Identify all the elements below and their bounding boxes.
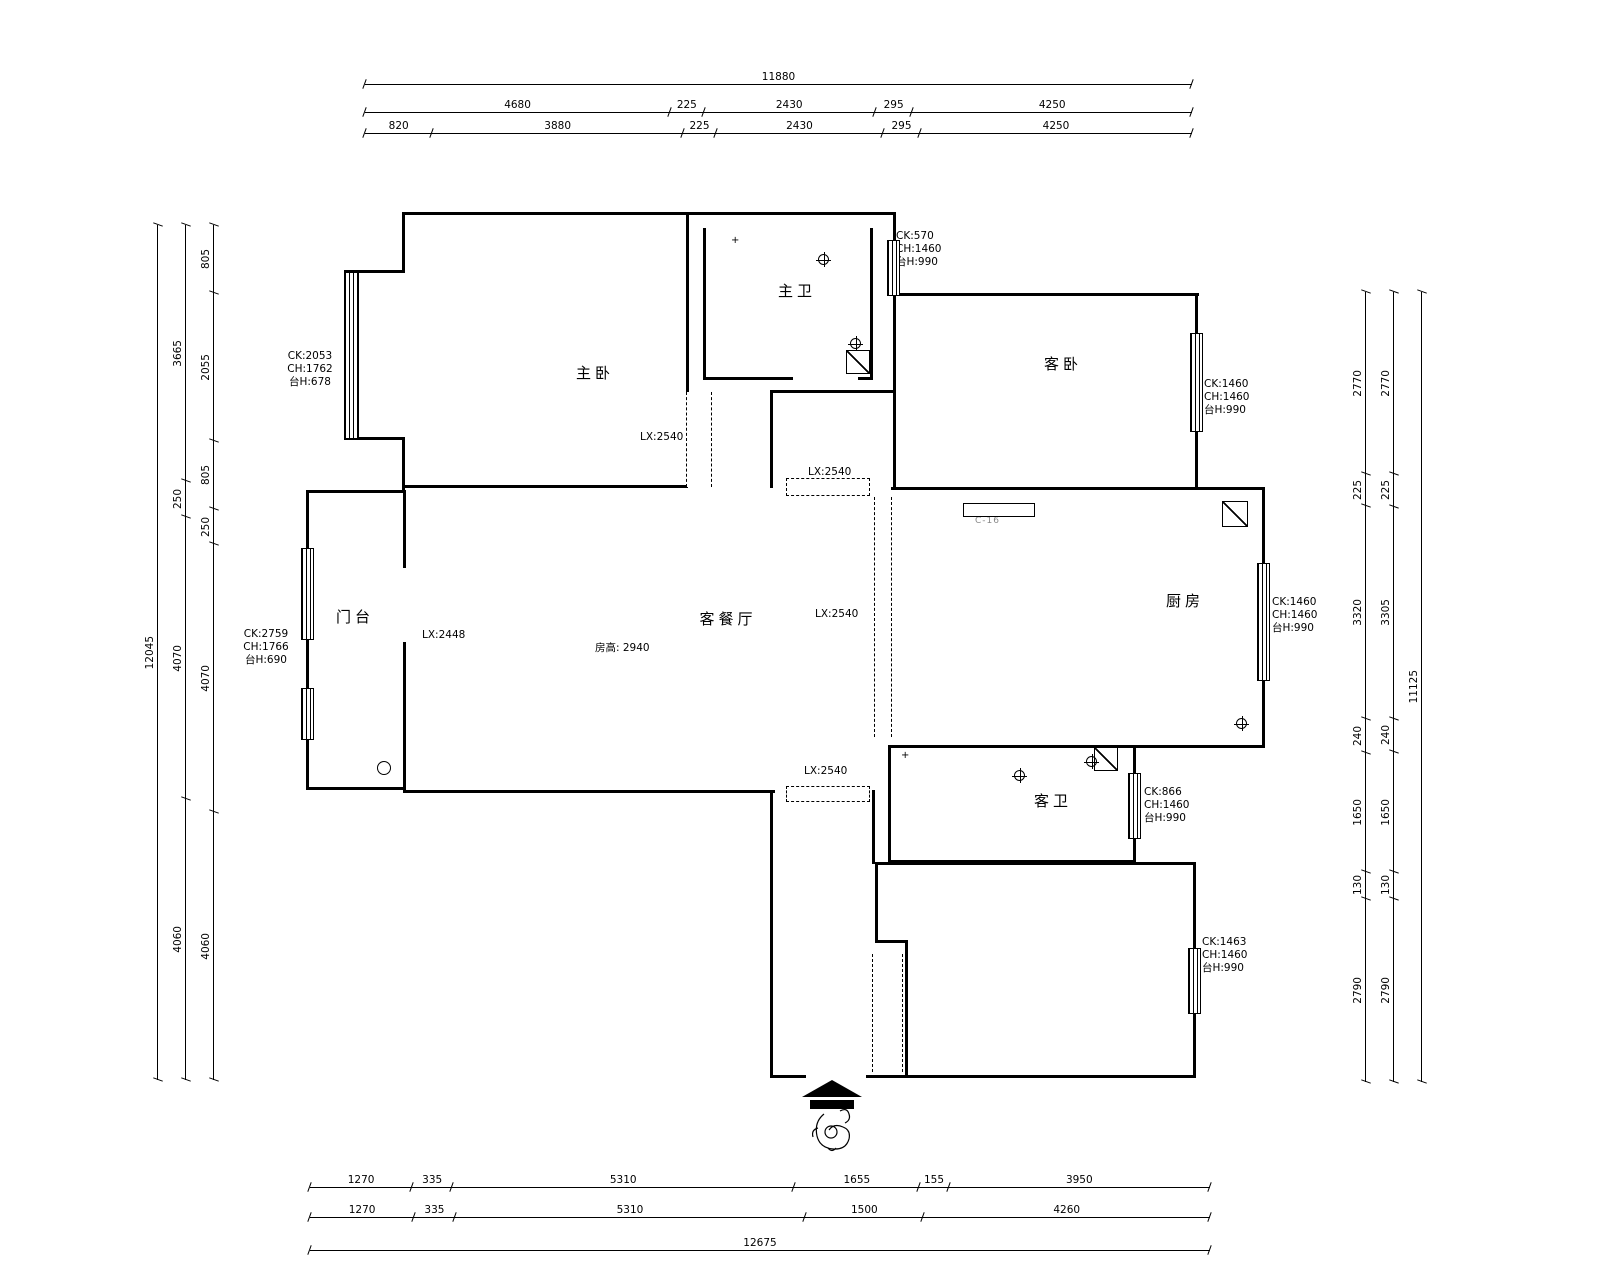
dimension-value: 4260 xyxy=(1053,1205,1080,1218)
dimension-value: 2770 xyxy=(1381,370,1392,397)
dimension-segment: 3665 xyxy=(171,225,185,481)
dimension-chain-top-row2: 468022524302954250 xyxy=(365,98,1192,113)
dimension-value: 12045 xyxy=(145,636,156,669)
wall xyxy=(866,1075,1196,1078)
spec-line: CK:1460 xyxy=(1272,596,1318,609)
dimension-segment: 1270 xyxy=(310,1173,412,1187)
dimension-value: 225 xyxy=(677,100,697,113)
opening-note-kitchen-corridor: LX:2540 xyxy=(815,608,858,620)
wall xyxy=(686,212,689,392)
fixture-symbol-icon xyxy=(1014,770,1025,781)
dimension-segment: 4070 xyxy=(171,517,185,799)
mark-symbol: + xyxy=(731,235,739,246)
spec-line: CH:1766 xyxy=(234,641,298,654)
kitchen-notch-label: C-16 xyxy=(975,516,1000,526)
dimension-chain-bottom-total: 12675 xyxy=(310,1236,1210,1251)
dimension-chain-left-inner: 805205580525040704060 xyxy=(199,225,214,1080)
dimension-chain-top-row3: 820388022524302954250 xyxy=(365,119,1192,134)
dimension-value: 295 xyxy=(891,121,911,134)
dimension-segment: 3880 xyxy=(432,119,683,133)
dimension-value: 2790 xyxy=(1381,977,1392,1004)
porch-column-symbol xyxy=(377,761,391,775)
dimension-segment: 805 xyxy=(199,441,213,509)
dimension-chain-bottom-row1: 1270335531016551553950 xyxy=(310,1173,1210,1188)
dimension-chain-bottom-row2: 1270335531015004260 xyxy=(310,1203,1210,1218)
wall xyxy=(306,490,406,493)
spec-line: 台H:990 xyxy=(896,256,942,269)
dimension-segment: 12045 xyxy=(143,225,157,1080)
dimension-value: 155 xyxy=(924,1175,944,1188)
mark-symbol: + xyxy=(901,750,909,761)
dimension-value: 5310 xyxy=(617,1205,644,1218)
dimension-value: 1500 xyxy=(851,1205,878,1218)
dimension-value: 1270 xyxy=(349,1205,376,1218)
opening-master-closet xyxy=(686,392,712,487)
dimension-value: 805 xyxy=(201,249,212,269)
window-spec-kitchen: CK:1460 CH:1460 台H:990 xyxy=(1272,596,1318,635)
dimension-segment: 2790 xyxy=(1351,899,1365,1082)
wall xyxy=(403,790,775,793)
kitchen-wall-notch xyxy=(963,503,1035,517)
dimension-segment: 335 xyxy=(412,1173,452,1187)
room-label-guest-bedroom: 客卧 xyxy=(1028,353,1098,374)
dimension-segment: 4250 xyxy=(920,119,1192,133)
dimension-value: 1270 xyxy=(348,1175,375,1188)
dimension-value: 11125 xyxy=(1409,670,1420,703)
dimension-value: 12675 xyxy=(743,1238,776,1251)
opening-kitchen-corridor xyxy=(874,497,892,737)
spec-line: CH:1460 xyxy=(1144,799,1190,812)
dimension-segment: 335 xyxy=(414,1203,454,1217)
room-label-kitchen: 厨房 xyxy=(1150,590,1220,611)
dimension-segment: 225 xyxy=(683,119,716,133)
dimension-value: 2430 xyxy=(786,121,813,134)
dimension-segment: 155 xyxy=(919,1173,948,1187)
dimension-segment: 11880 xyxy=(365,70,1192,84)
wall xyxy=(402,212,896,215)
window-master-bay-icon xyxy=(344,272,359,439)
dimension-segment: 2430 xyxy=(704,98,875,112)
dimension-value: 4060 xyxy=(201,933,212,960)
dimension-value: 2430 xyxy=(776,100,803,113)
window-top-right-icon xyxy=(887,240,900,296)
dimension-value: 1655 xyxy=(843,1175,870,1188)
window-spec-master-bay: CK:2053 CH:1762 台H:678 xyxy=(278,350,342,389)
dimension-value: 3320 xyxy=(1353,599,1364,626)
wall xyxy=(403,490,406,568)
room-label-master-bath: 主卫 xyxy=(762,280,832,301)
window-porch-upper-icon xyxy=(301,548,314,640)
dimension-value: 11880 xyxy=(762,72,795,85)
spec-line: 台H:678 xyxy=(278,376,342,389)
dimension-value: 3950 xyxy=(1066,1175,1093,1188)
wall xyxy=(402,485,688,488)
spec-line: 台H:990 xyxy=(1204,404,1250,417)
wall xyxy=(402,212,405,272)
dimension-segment: 240 xyxy=(1351,719,1365,752)
dimension-segment: 4250 xyxy=(912,98,1192,112)
spec-line: CK:2053 xyxy=(278,350,342,363)
wall xyxy=(875,862,1196,865)
dimension-value: 3880 xyxy=(544,121,571,134)
dimension-segment: 1650 xyxy=(1351,753,1365,872)
dimension-segment: 2055 xyxy=(199,293,213,442)
dimension-value: 820 xyxy=(389,121,409,134)
dimension-segment: 5310 xyxy=(452,1173,794,1187)
fixture-symbol-icon xyxy=(850,338,861,349)
window-spec-guest-bath: CK:866 CH:1460 台H:990 xyxy=(1144,786,1190,825)
dimension-value: 240 xyxy=(1381,725,1392,745)
wall xyxy=(875,940,908,943)
dimension-segment: 130 xyxy=(1379,872,1393,899)
dimension-segment: 2770 xyxy=(1351,292,1365,474)
wall xyxy=(306,490,309,790)
dimension-segment: 3950 xyxy=(949,1173,1210,1187)
fixture-symbol-icon xyxy=(1236,718,1247,729)
window-guest-bedroom-icon xyxy=(1190,333,1203,432)
dimension-value: 2790 xyxy=(1353,977,1364,1004)
dimension-segment: 1270 xyxy=(310,1203,414,1217)
room-label-guest-bath: 客卫 xyxy=(1018,790,1088,811)
wall xyxy=(770,390,773,488)
dimension-value: 1650 xyxy=(1353,799,1364,826)
window-guest-bath-icon xyxy=(1128,773,1141,839)
dimension-chain-right-inner: 2770225332024016501302790 xyxy=(1351,292,1366,1082)
dimension-segment: 2770 xyxy=(1379,292,1393,474)
wall xyxy=(905,940,908,1077)
dimension-segment: 4060 xyxy=(171,799,185,1080)
dimension-segment: 805 xyxy=(199,225,213,293)
dimension-chain-left-total: 12045 xyxy=(143,225,158,1080)
dimension-segment: 2790 xyxy=(1379,899,1393,1082)
dimension-segment: 4680 xyxy=(365,98,670,112)
dimension-segment: 12675 xyxy=(310,1236,1210,1250)
dimension-value: 4070 xyxy=(173,645,184,672)
wall xyxy=(893,293,1199,296)
wall xyxy=(703,228,706,380)
dimension-value: 2055 xyxy=(201,354,212,381)
spec-line: CH:1460 xyxy=(1204,391,1250,404)
window-kitchen-icon xyxy=(1257,563,1270,681)
opening-note-master-closet: LX:2540 xyxy=(640,431,683,443)
dimension-segment: 225 xyxy=(1379,474,1393,507)
dimension-value: 240 xyxy=(1353,726,1364,746)
dimension-segment: 250 xyxy=(199,509,213,544)
window-porch-lower-icon xyxy=(301,688,314,740)
dimension-chain-right-mid: 2770225330524016501302790 xyxy=(1379,292,1394,1082)
dimension-value: 1650 xyxy=(1381,799,1392,826)
wall xyxy=(403,642,406,793)
spec-line: 台H:690 xyxy=(234,654,298,667)
wall xyxy=(870,228,873,380)
dimension-segment: 130 xyxy=(1351,872,1365,899)
spec-line: CH:1762 xyxy=(278,363,342,376)
dimension-segment: 5310 xyxy=(455,1203,806,1217)
wall xyxy=(770,390,894,393)
opening-note-living-corridor: LX:2540 xyxy=(804,765,847,777)
drain-symbol-icon xyxy=(1094,747,1118,771)
spec-line: CH:1460 xyxy=(1272,609,1318,622)
spec-line: CH:1460 xyxy=(1202,949,1248,962)
dimension-value: 250 xyxy=(173,489,184,509)
dimension-chain-top-total: 11880 xyxy=(365,70,1192,85)
dimension-segment: 295 xyxy=(883,119,920,133)
dimension-segment: 4060 xyxy=(199,812,213,1080)
dimension-value: 130 xyxy=(1353,875,1364,895)
wall xyxy=(770,793,773,1078)
dimension-value: 5310 xyxy=(610,1175,637,1188)
entrance-arrow-icon xyxy=(802,1080,862,1097)
dimension-value: 2770 xyxy=(1353,370,1364,397)
dimension-value: 4680 xyxy=(504,100,531,113)
dimension-value: 4250 xyxy=(1039,100,1066,113)
wall xyxy=(872,790,875,864)
dimension-value: 130 xyxy=(1381,875,1392,895)
dimension-segment: 3320 xyxy=(1351,506,1365,719)
dimension-value: 4070 xyxy=(201,665,212,692)
dimension-segment: 1655 xyxy=(794,1173,919,1187)
dimension-value: 225 xyxy=(1353,480,1364,500)
window-bottom-bedroom-icon xyxy=(1188,948,1201,1014)
window-spec-guest-bedroom: CK:1460 CH:1460 台H:990 xyxy=(1204,378,1250,417)
spec-line: 台H:990 xyxy=(1144,812,1190,825)
window-spec-top-right: CK:570 CH:1460 台H:990 xyxy=(896,230,942,269)
spec-line: CK:1463 xyxy=(1202,936,1248,949)
room-label-living-dining: 客餐厅 xyxy=(686,608,770,629)
dimension-segment: 4260 xyxy=(923,1203,1210,1217)
dimension-segment: 240 xyxy=(1379,719,1393,753)
dimension-value: 805 xyxy=(201,465,212,485)
window-spec-porch-left: CK:2759 CH:1766 台H:690 xyxy=(234,628,298,667)
wall xyxy=(875,865,878,943)
window-spec-bottom-bedroom: CK:1463 CH:1460 台H:990 xyxy=(1202,936,1248,975)
dimension-value: 335 xyxy=(424,1205,444,1218)
spec-line: CH:1460 xyxy=(896,243,942,256)
wall xyxy=(770,1075,806,1078)
opening-living-corridor xyxy=(786,786,870,802)
room-height-note: 房高: 2940 xyxy=(595,640,650,655)
dimension-segment: 3305 xyxy=(1379,507,1393,719)
dimension-segment: 250 xyxy=(171,481,185,517)
drain-symbol-icon xyxy=(1222,501,1248,527)
dimension-segment: 4070 xyxy=(199,544,213,812)
spec-line: CK:570 xyxy=(896,230,942,243)
spec-line: CK:866 xyxy=(1144,786,1190,799)
dimension-value: 250 xyxy=(201,517,212,537)
spec-line: 台H:990 xyxy=(1272,622,1318,635)
dimension-value: 3305 xyxy=(1381,599,1392,626)
fixture-symbol-icon xyxy=(818,254,829,265)
dimension-value: 295 xyxy=(884,100,904,113)
dimension-value: 225 xyxy=(1381,480,1392,500)
wall xyxy=(891,745,1265,748)
room-label-porch: 门台 xyxy=(322,606,388,627)
floor-plan-canvas: 主卧 主卫 客卧 厨房 客餐厅 门台 客卫 房高: 2940 LX:2448 L… xyxy=(0,0,1600,1280)
wall xyxy=(703,377,793,380)
entrance-figure-sketch xyxy=(800,1106,868,1154)
opening-note-passage-top: LX:2540 xyxy=(808,466,851,478)
dimension-value: 4060 xyxy=(173,926,184,953)
dimension-segment: 820 xyxy=(365,119,432,133)
spec-line: 台H:990 xyxy=(1202,962,1248,975)
dimension-segment: 225 xyxy=(1351,474,1365,507)
drain-symbol-icon xyxy=(846,350,870,374)
opening-note-living-width: LX:2448 xyxy=(422,629,465,641)
room-label-master-bedroom: 主卧 xyxy=(560,362,630,383)
dimension-segment: 1500 xyxy=(805,1203,923,1217)
dimension-segment: 1650 xyxy=(1379,752,1393,871)
dimension-chain-left-mid: 366525040704060 xyxy=(171,225,186,1080)
wall xyxy=(306,787,406,790)
dimension-segment: 11125 xyxy=(1407,292,1421,1082)
wall xyxy=(891,487,1265,490)
opening-bedroom-entry xyxy=(872,954,903,1072)
dimension-value: 3665 xyxy=(173,340,184,367)
wall xyxy=(888,745,891,863)
dimension-value: 4250 xyxy=(1043,121,1070,134)
opening-passage-top xyxy=(786,478,870,496)
dimension-value: 335 xyxy=(422,1175,442,1188)
dimension-segment: 295 xyxy=(875,98,913,112)
dimension-chain-right-total: 11125 xyxy=(1407,292,1422,1082)
dimension-segment: 2430 xyxy=(716,119,883,133)
spec-line: CK:1460 xyxy=(1204,378,1250,391)
dimension-value: 225 xyxy=(689,121,709,134)
dimension-segment: 225 xyxy=(670,98,703,112)
spec-line: CK:2759 xyxy=(234,628,298,641)
